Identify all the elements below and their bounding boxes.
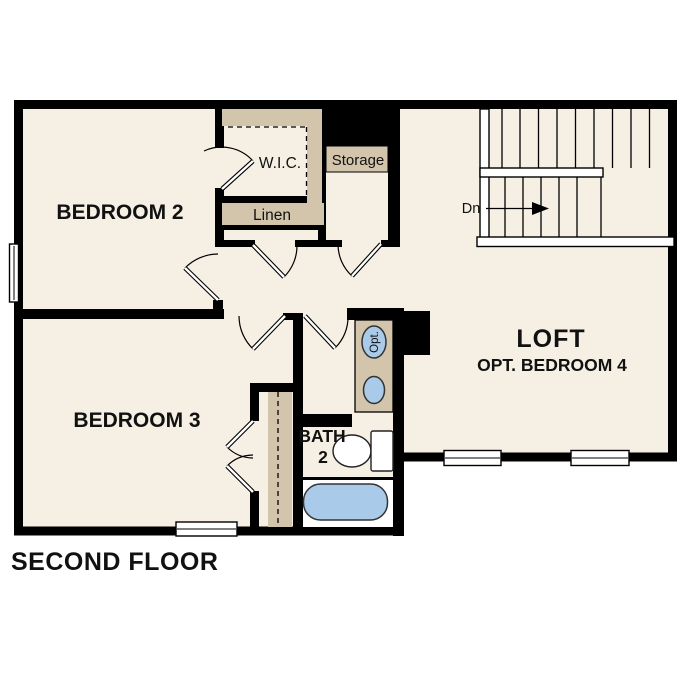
wall-segment: [295, 240, 342, 247]
stair-down-label: Dn: [462, 201, 481, 217]
floor-plan-drawing: Dn: [0, 0, 687, 687]
floor-plan-page: Dn: [0, 0, 687, 687]
tub-alcove-wall: [296, 477, 393, 480]
wall-segment: [250, 383, 259, 421]
label-linen: Linen: [253, 207, 291, 224]
page-title: SECOND FLOOR: [11, 548, 218, 576]
label-storage: Storage: [332, 152, 385, 169]
stair-bottom-rail: [477, 237, 674, 247]
wall-segment: [347, 308, 404, 320]
toilet-tank: [371, 431, 393, 471]
label-bedroom3: BEDROOM 3: [73, 409, 200, 432]
wall-segment: [250, 491, 259, 531]
label-wic: W.I.C.: [259, 155, 301, 172]
label-bath-line2: 2: [318, 447, 328, 467]
label-loft: LOFT: [516, 325, 585, 353]
wall-segment: [404, 311, 430, 355]
stair-landing-rail: [480, 168, 603, 177]
sink-optional-label: Opt.: [369, 331, 381, 353]
label-bath-line1: BATH: [298, 426, 345, 446]
wall-segment: [393, 313, 404, 536]
wall-segment: [388, 104, 400, 247]
wall-segment: [283, 313, 303, 320]
wall-segment: [222, 225, 324, 230]
sink: [364, 377, 385, 404]
wic-shelf-top: [222, 109, 322, 126]
wall-segment: [381, 240, 400, 247]
label-loft-sublabel: OPT. BEDROOM 4: [477, 355, 627, 375]
label-bedroom2: BEDROOM 2: [56, 201, 183, 224]
bedroom3-closet-shelf: [268, 392, 292, 527]
wic-shelf-right: [307, 126, 322, 203]
bathtub: [304, 484, 388, 520]
wall-segment: [18, 309, 224, 319]
wall-segment: [216, 240, 255, 247]
